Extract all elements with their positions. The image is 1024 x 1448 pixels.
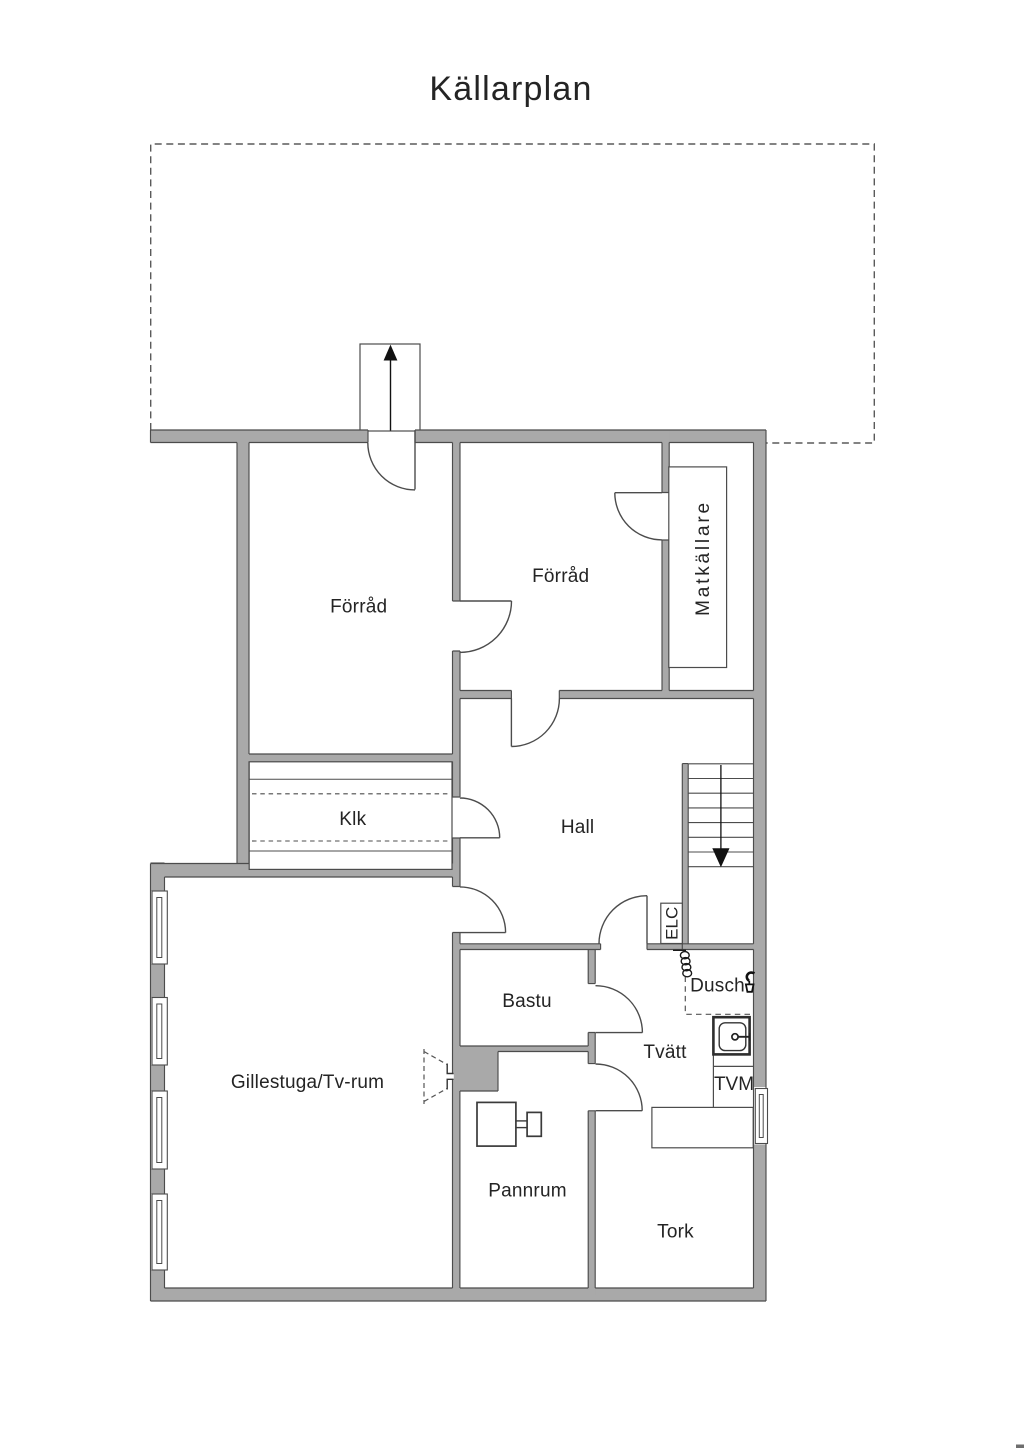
svg-text:ELC: ELC [663,907,682,940]
svg-text:Tork: Tork [657,1222,694,1243]
svg-text:TVM: TVM [714,1074,754,1095]
svg-text:Tvätt: Tvätt [643,1042,687,1063]
svg-text:Dusch: Dusch [690,976,745,997]
svg-text:Hall: Hall [561,817,595,838]
svg-text:Klk: Klk [339,809,366,830]
svg-text:Pannrum: Pannrum [488,1181,567,1202]
svg-text:Förråd: Förråd [330,597,387,618]
svg-text:Gillestuga/Tv-rum: Gillestuga/Tv-rum [231,1072,384,1093]
svg-text:Bastu: Bastu [502,991,552,1012]
svg-text:Matkällare: Matkällare [693,500,714,616]
svg-text:Förråd: Förråd [532,566,589,587]
svg-text:Källarplan: Källarplan [429,70,592,108]
